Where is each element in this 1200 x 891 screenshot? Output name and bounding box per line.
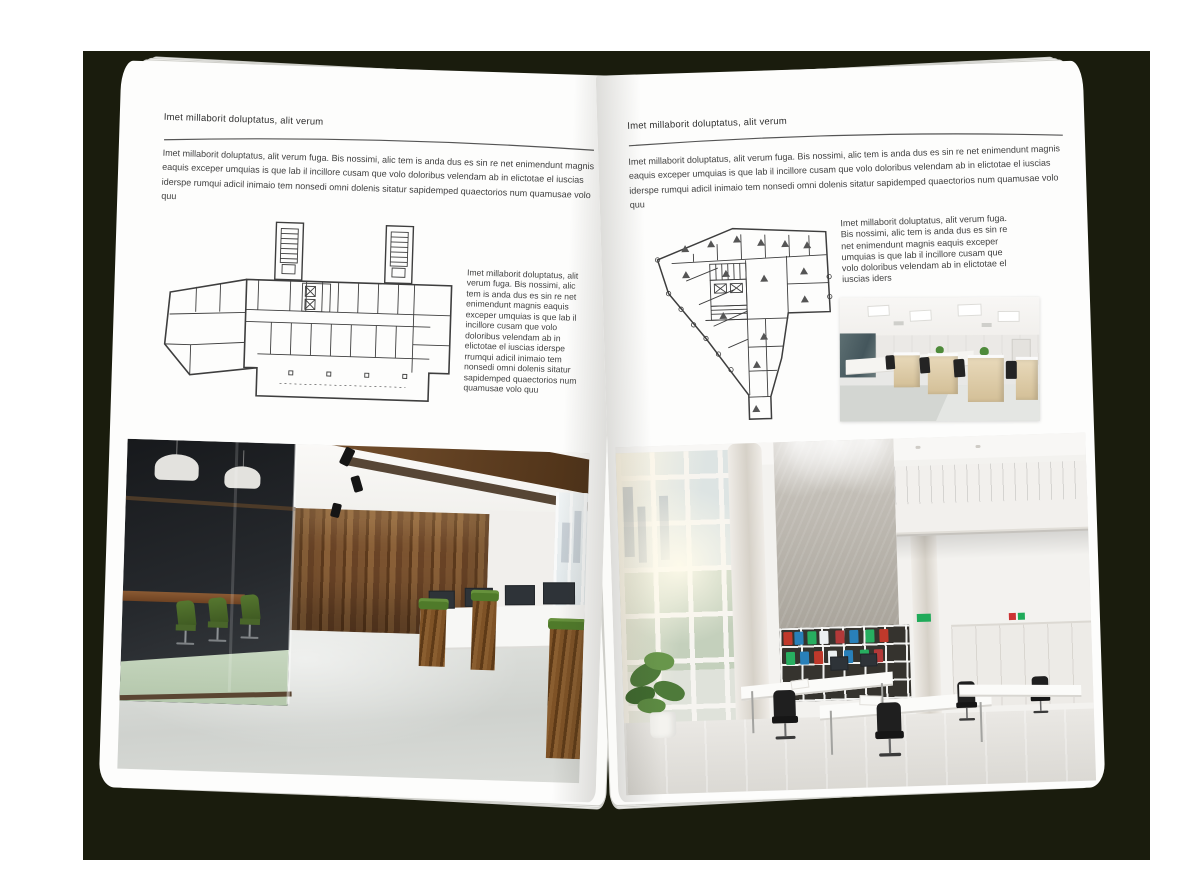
- magazine-mockup-canvas: Imet millaborit doluptatus, alit verum I…: [0, 0, 1200, 891]
- binder-green: [807, 631, 816, 644]
- polished-floor: [624, 708, 1096, 795]
- wood-planter-box: [471, 600, 497, 671]
- black-office-chair: [953, 359, 965, 378]
- concrete-feature-wall: [773, 439, 899, 639]
- green-office-chair: [173, 600, 198, 645]
- right-page-header: Imet millaborit doluptatus, alit verum: [627, 116, 787, 132]
- desk-plant: [936, 346, 944, 353]
- computer-monitor: [860, 653, 877, 667]
- right-page: Imet millaborit doluptatus, alit verum I…: [596, 61, 1106, 803]
- pendant-lamp: [154, 454, 199, 481]
- computer-monitor: [830, 656, 848, 671]
- binder-white: [819, 631, 828, 644]
- black-mesh-chair: [771, 690, 799, 740]
- binder-red: [783, 632, 792, 645]
- glass-meeting-room: [119, 439, 295, 706]
- open-magazine: Imet millaborit doluptatus, alit verum I…: [83, 51, 1150, 860]
- ceiling-downlight: [975, 445, 980, 448]
- binder-red: [835, 630, 844, 643]
- left-office-photo: [117, 439, 589, 783]
- ceiling-light-panel: [909, 310, 932, 322]
- green-office-chair: [205, 597, 230, 642]
- binder-blue: [794, 632, 803, 645]
- right-floorplan-image: [644, 216, 840, 429]
- dark-backdrop: Imet millaborit doluptatus, alit verum I…: [83, 51, 1150, 860]
- planter-grass: [548, 618, 586, 630]
- ceiling-downlight: [915, 446, 920, 449]
- binder-blue: [849, 630, 858, 643]
- computer-monitor: [543, 582, 575, 604]
- right-side-paragraph: Imet millaborit doluptatus, alit verum f…: [840, 213, 1014, 286]
- desk-plant: [980, 347, 989, 355]
- green-office-chair: [237, 594, 262, 639]
- storage-cabinet: [1016, 357, 1038, 400]
- pendant-lamp: [224, 466, 261, 489]
- first-aid-sign: [1009, 613, 1016, 620]
- binder-red: [879, 629, 888, 642]
- right-small-photo: [840, 297, 1040, 422]
- left-floorplan-image: [159, 212, 457, 419]
- planter-grass: [418, 598, 448, 610]
- wood-planter-box: [419, 608, 447, 667]
- black-office-chair: [919, 357, 930, 374]
- exit-sign: [917, 614, 931, 622]
- city-view: [561, 522, 570, 562]
- left-side-paragraph: Imet millaborit doluptatus, alit verum f…: [463, 267, 587, 397]
- right-intro-paragraph: Imet millaborit doluptatus, alit verum f…: [628, 141, 1070, 212]
- left-page: Imet millaborit doluptatus, alit verum I…: [99, 60, 619, 802]
- binder-green: [865, 629, 874, 642]
- plant-pot: [650, 712, 677, 739]
- storage-cabinet: [894, 352, 920, 387]
- black-office-chair: [1006, 361, 1017, 379]
- ceiling-vent: [894, 321, 904, 325]
- ceiling-light-panel: [957, 304, 981, 317]
- safety-sign: [1018, 613, 1025, 620]
- left-intro-paragraph: Imet millaborit doluptatus, alit verum f…: [161, 146, 599, 217]
- right-office-photo: [615, 433, 1096, 796]
- mezzanine-balcony: [894, 461, 1088, 537]
- ceiling-light-panel: [998, 311, 1020, 322]
- planter-grass: [471, 590, 499, 602]
- white-desk: [959, 685, 1081, 697]
- binder-blue: [800, 651, 809, 664]
- ceiling-vent: [982, 323, 992, 327]
- computer-monitor: [505, 585, 535, 605]
- black-office-chair: [885, 355, 895, 370]
- ceiling-light-panel: [867, 305, 890, 317]
- black-mesh-chair: [874, 702, 904, 757]
- left-page-header: Imet millaborit doluptatus, alit verum: [164, 112, 324, 128]
- wood-planter-box: [546, 628, 584, 759]
- binder-green: [786, 652, 795, 665]
- binder-red: [814, 651, 823, 664]
- storage-cabinet: [968, 355, 1004, 402]
